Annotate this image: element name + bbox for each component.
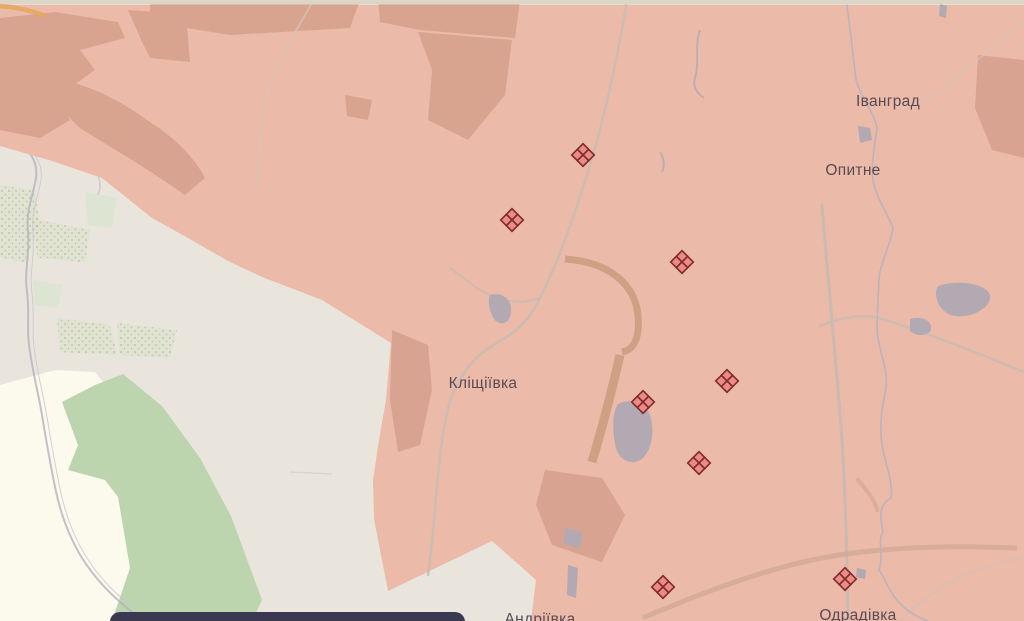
map-viewport: ІванградОпитнеКліщіївкаАндріївкаОдрадівк… (0, 0, 1024, 621)
place-label: Опитне (825, 162, 880, 179)
place-label: Одрадівка (819, 607, 896, 621)
place-label: Андріївка (505, 611, 576, 621)
place-label: Кліщіївка (449, 375, 518, 392)
map-canvas[interactable]: ІванградОпитнеКліщіївкаАндріївкаОдрадівк… (0, 0, 1024, 621)
tile-edge-strip (0, 0, 1024, 5)
bottom-panel[interactable] (110, 612, 465, 621)
place-label: Іванград (856, 93, 920, 110)
